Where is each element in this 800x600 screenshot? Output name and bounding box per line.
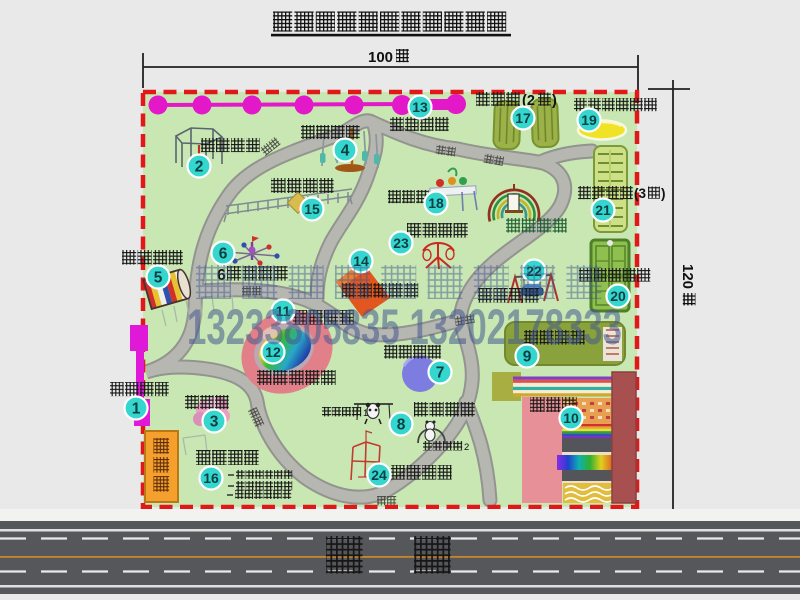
svg-text:15: 15 xyxy=(304,201,320,217)
svg-text:2: 2 xyxy=(195,159,204,176)
svg-text:18: 18 xyxy=(428,195,444,211)
svg-text:(3: (3 xyxy=(634,186,646,201)
svg-text:120: 120 xyxy=(679,264,696,289)
svg-text:24: 24 xyxy=(371,467,387,483)
svg-text:7: 7 xyxy=(436,365,445,382)
svg-text:16: 16 xyxy=(203,470,219,486)
svg-text:19: 19 xyxy=(581,112,597,128)
svg-text:): ) xyxy=(661,186,666,201)
svg-text:2: 2 xyxy=(464,442,469,453)
svg-text:17: 17 xyxy=(515,110,531,126)
svg-text:21: 21 xyxy=(595,202,611,218)
svg-text:13233805835 13202178333: 13233805835 13202178333 xyxy=(187,299,622,355)
svg-text:1: 1 xyxy=(363,408,368,419)
svg-text:4: 4 xyxy=(341,143,350,160)
svg-text:8: 8 xyxy=(397,417,406,434)
svg-text:): ) xyxy=(552,93,557,109)
svg-text:10: 10 xyxy=(563,410,579,426)
svg-text:1: 1 xyxy=(132,401,141,418)
svg-text:100: 100 xyxy=(368,49,393,66)
svg-text:13: 13 xyxy=(412,99,428,115)
svg-text:3: 3 xyxy=(210,414,219,431)
svg-text:5: 5 xyxy=(154,270,163,287)
svg-text:23: 23 xyxy=(393,235,409,251)
svg-text:6: 6 xyxy=(219,246,228,263)
